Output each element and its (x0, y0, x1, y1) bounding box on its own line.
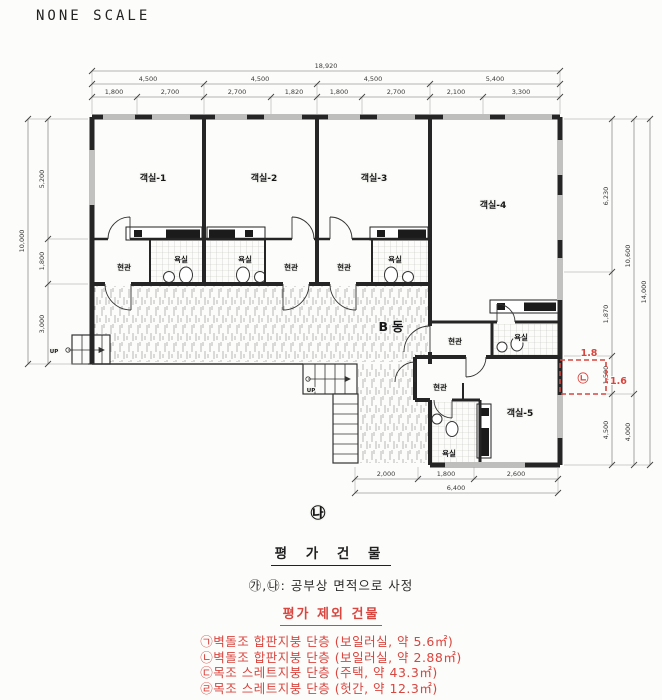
entrance-label: 현관 (284, 262, 298, 272)
excluded-item-1: ㉠벽돌조 합판지붕 단층 (보일러실, 약 5.6㎡) (200, 634, 461, 650)
dim-top-total: 18,920 (315, 62, 338, 70)
dim-bottom: 2,600 (507, 470, 526, 478)
entrance-label: 현관 (337, 262, 351, 272)
dim-left-total: 10,000 (18, 230, 26, 253)
excluded-item-2: ㉡벽돌조 합판지붕 단층 (보일러실, 약 2.88㎡) (200, 650, 461, 666)
dims-right: 6,230 1,870 1,500 4,500 10,600 4,000 14,… (564, 116, 653, 468)
excluded-list: ㉠벽돌조 합판지붕 단층 (보일러실, 약 5.6㎡) ㉡벽돌조 합판지붕 단층… (200, 634, 461, 696)
floor-plan-sheet: 18,920 4,500 4,500 4,500 5,400 1,800 2,7… (0, 0, 662, 535)
notes-subtitle: ㉮,㉯: 공부상 면적으로 사정 (0, 575, 662, 594)
dim-top-span: 5,400 (486, 75, 505, 83)
dim-top-span: 4,500 (364, 75, 383, 83)
dim-bottom-total: 6,400 (447, 484, 466, 492)
bath-label: 욕실 (388, 254, 402, 264)
annotation-height: 1.6 (610, 376, 627, 387)
dim-top-sub: 2,700 (228, 88, 247, 96)
dim-top-sub: 1,800 (330, 88, 349, 96)
entrance5-floor (413, 355, 463, 402)
stair-left (66, 335, 110, 364)
excluded-title: 평가 제외 건물 (280, 603, 383, 626)
basin-icon (432, 414, 442, 424)
notes-title: 평 가 건 물 (271, 542, 392, 566)
dim-left: 1,800 (38, 252, 46, 271)
basin-icon (255, 272, 266, 283)
dim-left: 5,200 (38, 170, 46, 189)
room-label-3: 객실-3 (361, 172, 388, 184)
basin-icon (164, 272, 175, 283)
deck-hatch (94, 286, 428, 463)
dims-bottom: 2,000 1,800 2,600 6,400 (352, 467, 561, 496)
stair-strip (333, 394, 358, 463)
up-label: UP (307, 388, 316, 394)
up-label: UP (50, 349, 59, 355)
dim-right: 4,500 (602, 421, 610, 440)
dim-top-sub: 2,700 (161, 88, 180, 96)
dim-top-sub: 3,300 (512, 88, 531, 96)
building-b-label: B동 (378, 319, 407, 334)
room-label-4: 객실-4 (480, 199, 507, 211)
entrance-label: 현관 (448, 336, 462, 346)
dim-bottom: 1,800 (437, 470, 456, 478)
excluded-building-annotation: 1.8 ㉡ 1.6 (560, 348, 627, 394)
toilet-icon (237, 267, 250, 283)
dim-right-mid: 10,600 (624, 245, 632, 268)
dim-right: 1,870 (602, 305, 610, 324)
excluded-item-4: ㉣목조 스레트지붕 단층 (헛간, 약 12.3㎡) (200, 681, 461, 697)
entrance-label: 현관 (117, 262, 131, 272)
dim-left: 3,000 (38, 315, 46, 334)
notes-section: 평 가 건 물 ㉮,㉯: 공부상 면적으로 사정 평가 제외 건물 ㉠벽돌조 합… (0, 542, 662, 696)
bath-label: 욕실 (174, 254, 188, 264)
annotation-symbol: ㉡ (578, 371, 589, 385)
room-label-2: 객실-2 (251, 172, 278, 184)
dim-right-mid: 4,000 (624, 423, 632, 442)
dim-top-sub: 2,700 (387, 88, 406, 96)
building-b-marker: ㉯ (310, 504, 325, 522)
room-label-5: 객실-5 (507, 407, 534, 419)
dim-top-sub: 1,820 (285, 88, 304, 96)
toilet-icon (446, 422, 458, 437)
dim-right: 6,230 (602, 187, 610, 206)
dim-right-total: 14,000 (640, 281, 648, 304)
basin-icon (403, 272, 414, 283)
annotation-width: 1.8 (581, 348, 598, 359)
toilet-icon (180, 267, 193, 283)
entrance-label: 현관 (433, 382, 447, 392)
basin-icon (497, 342, 507, 352)
dim-top-sub: 2,100 (447, 88, 466, 96)
dim-bottom: 2,000 (377, 470, 396, 478)
excluded-item-3: ㉢목조 스레트지붕 단층 (주택, 약 43.3㎡) (200, 665, 461, 681)
bath-label: 욕실 (238, 254, 252, 264)
dims-left: 5,200 1,800 3,000 10,000 (18, 116, 88, 367)
toilet-icon (385, 267, 398, 283)
bath-label: 욕실 (514, 332, 528, 342)
dim-top-span: 4,500 (251, 75, 270, 83)
bath-label: 욕실 (442, 448, 456, 458)
dim-top-sub: 1,800 (105, 88, 124, 96)
room-label-1: 객실-1 (140, 172, 167, 184)
floor-plan-svg: 18,920 4,500 4,500 4,500 5,400 1,800 2,7… (0, 0, 662, 535)
dim-top-span: 4,500 (139, 75, 158, 83)
dims-top: 18,920 4,500 4,500 4,500 5,400 1,800 2,7… (89, 62, 563, 114)
